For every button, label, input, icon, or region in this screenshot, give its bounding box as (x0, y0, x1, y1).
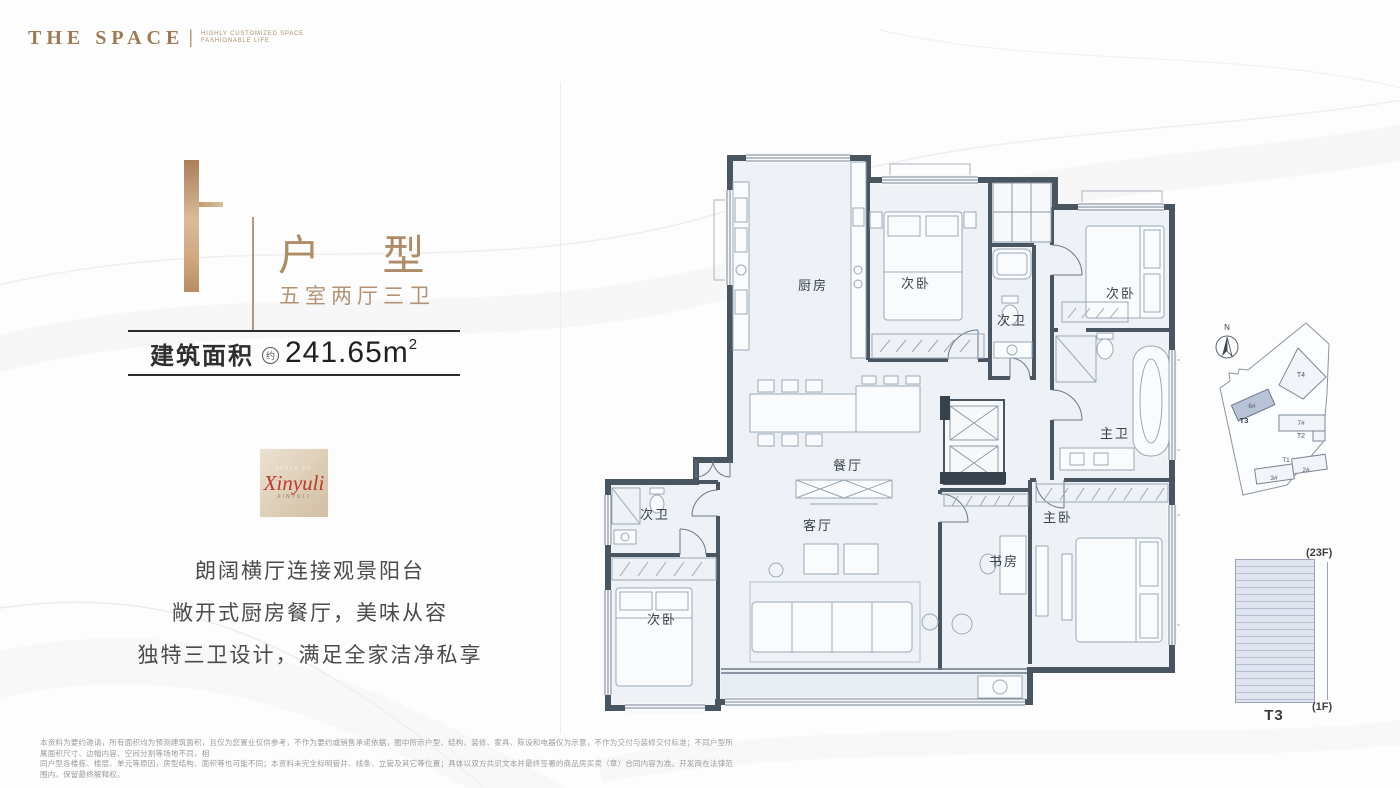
room-label-dining: 餐厅 (833, 458, 863, 473)
site-map: N T4 6# T3 7# T2 T1 3# 2# (1185, 315, 1400, 505)
brand-tagline-line2: FASHIONABLE LIFE (201, 38, 304, 45)
room-label-bedroom-left: 次卧 (647, 612, 677, 627)
unit-letter-arm (199, 202, 223, 207)
room-label-living: 客厅 (803, 518, 833, 533)
room-label-bath-left: 次卫 (640, 507, 670, 522)
disclaimer: 本资料为要约邀请，所有面积均为预测建筑面积，且仅为您置业仅供参考，不作为要约或销… (40, 738, 735, 780)
building-t2-annex (1313, 431, 1325, 441)
brand-name: THE SPACE (28, 27, 184, 50)
tower-bottom-floor: (1F) (1312, 701, 1332, 713)
brand-separator: | (188, 27, 193, 48)
building-2-label: 2# (1302, 467, 1310, 474)
disclaimer-line-2: 同户型各楼栋、楼层、单元等原因，房型结构、面积等也可能不同；本资料未完全标明管井… (40, 759, 735, 780)
feature-line-2: 敞开式厨房餐厅，美味从容 (20, 593, 600, 635)
approx-circle-badge: 约 (262, 347, 279, 364)
brand-logo: THE SPACE | HIGHLY CUSTOMIZED SPACE FASH… (28, 27, 304, 50)
area-label: 建筑面积 (150, 336, 254, 371)
brand-tagline-line1: HIGHLY CUSTOMIZED SPACE (201, 31, 304, 38)
tower-height-line (1327, 562, 1328, 700)
area-value: 241.65m (285, 336, 409, 370)
building-3-label: 3# (1270, 475, 1278, 482)
building-area-strip: 建筑面积 约 241.65m 2 (128, 330, 460, 376)
project-seal: SPACE OF Xinyuli XINYULI (260, 449, 328, 517)
brand-tagline: HIGHLY CUSTOMIZED SPACE FASHIONABLE LIFE (201, 27, 304, 45)
panel-divider-line (560, 82, 561, 734)
room-label-bath-top: 次卫 (997, 313, 1027, 328)
floor-plan: 厨房 次卧 次卫 次卧 主卫 主卧 餐厅 客厅 书房 次卫 次卧 (600, 150, 1180, 720)
unit-layout-subtitle: 五室两厅三卫 (279, 280, 435, 310)
feature-line-3: 独特三卫设计，满足全家洁净私享 (20, 635, 600, 677)
building-t2-label: T2 (1297, 433, 1305, 440)
north-arrow-icon: N (1216, 323, 1238, 358)
area-superscript: 2 (409, 336, 417, 353)
title-divider-line (252, 217, 254, 330)
tower-elevation (1235, 559, 1315, 703)
unit-letter-stem (184, 160, 199, 292)
room-label-master-bedroom: 主卧 (1043, 510, 1073, 525)
feature-list: 朗阔横厅连接观景阳台 敞开式厨房餐厅，美味从容 独特三卫设计，满足全家洁净私享 (20, 551, 600, 677)
room-label-bedroom-top: 次卧 (901, 276, 931, 291)
building-t3-unit-label: 6# (1248, 403, 1256, 410)
seal-script-text: Xinyuli (264, 473, 325, 493)
room-label-bedroom-right: 次卧 (1106, 286, 1136, 301)
seal-bottom-text: XINYULI (277, 494, 310, 500)
room-label-master-bath: 主卫 (1100, 426, 1130, 441)
tower-top-floor: (23F) (1306, 547, 1332, 559)
north-label: N (1224, 323, 1230, 332)
disclaimer-line-1: 本资料为要约邀请，所有面积均为预测建筑面积，且仅为您置业仅供参考，不作为要约或销… (40, 738, 735, 759)
feature-line-1: 朗阔横厅连接观景阳台 (20, 551, 600, 593)
building-t3-label: T3 (1240, 416, 1249, 425)
unit-type-title: 户 型 (278, 222, 451, 283)
building-t2-unit-label: 7# (1297, 420, 1305, 427)
structural-core (940, 396, 1006, 484)
building-t4-label: T4 (1297, 372, 1305, 379)
room-label-study: 书房 (989, 554, 1019, 569)
tower-name: T3 (1235, 707, 1313, 724)
building-t1-label: T1 (1282, 457, 1290, 464)
room-label-kitchen: 厨房 (798, 278, 828, 293)
hall-closet (993, 183, 1051, 242)
brochure-page: THE SPACE | HIGHLY CUSTOMIZED SPACE FASH… (0, 0, 1400, 788)
